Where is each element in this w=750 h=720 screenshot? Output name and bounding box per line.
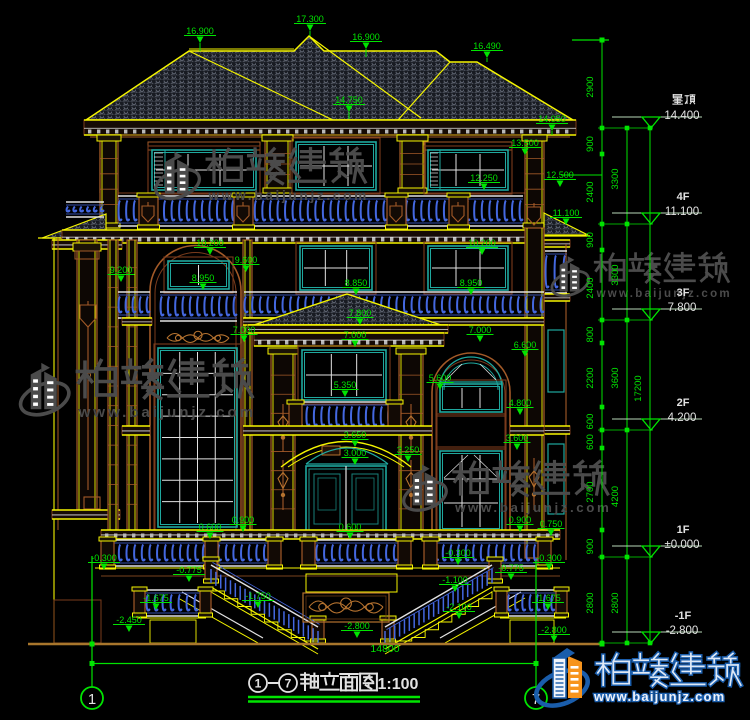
- svg-text:2200: 2200: [585, 367, 596, 388]
- svg-text:-2.100: -2.100: [446, 602, 472, 612]
- svg-text:-0.300: -0.300: [91, 553, 117, 563]
- svg-text:-0.300: -0.300: [445, 548, 471, 558]
- svg-text:2800: 2800: [610, 592, 621, 613]
- svg-text:5.350: 5.350: [334, 380, 357, 390]
- svg-text:0.900: 0.900: [509, 515, 532, 525]
- svg-text:900: 900: [585, 232, 596, 248]
- svg-text:14800: 14800: [370, 643, 399, 655]
- svg-text:600: 600: [585, 414, 596, 430]
- svg-text:12.250: 12.250: [470, 173, 498, 183]
- svg-text:1:100: 1:100: [378, 676, 419, 693]
- svg-text:0.900: 0.900: [232, 515, 255, 525]
- svg-text:3600: 3600: [610, 367, 621, 388]
- svg-text:-0.775: -0.775: [176, 565, 202, 575]
- svg-text:4.200: 4.200: [668, 412, 697, 424]
- svg-text:9.600: 9.600: [235, 255, 258, 265]
- svg-text:8.950: 8.950: [460, 278, 483, 288]
- svg-text:-0.775: -0.775: [498, 563, 524, 573]
- svg-text:3300: 3300: [610, 168, 621, 189]
- svg-text:10.200: 10.200: [468, 238, 496, 248]
- svg-text:5.600: 5.600: [429, 373, 452, 383]
- svg-text:6.600: 6.600: [514, 340, 537, 350]
- svg-text:www.baijunjz.com: www.baijunjz.com: [596, 288, 732, 300]
- svg-text:0.600: 0.600: [199, 522, 222, 532]
- svg-text:0.750: 0.750: [540, 519, 563, 529]
- svg-text:3.650: 3.650: [344, 430, 367, 440]
- svg-text:7.800: 7.800: [668, 302, 697, 314]
- svg-text:7.000: 7.000: [233, 325, 256, 335]
- svg-text:-1F: -1F: [675, 610, 692, 622]
- svg-text:1: 1: [88, 691, 96, 708]
- svg-text:-1.750: -1.750: [245, 591, 271, 601]
- svg-text:www.baijunjz.com: www.baijunjz.com: [593, 689, 725, 704]
- svg-text:800: 800: [585, 327, 596, 343]
- svg-text:-2.800: -2.800: [344, 621, 370, 631]
- svg-text:1: 1: [255, 677, 262, 691]
- svg-text:www.baijunjz.com: www.baijunjz.com: [207, 188, 369, 203]
- svg-text:www.baijunjz.com: www.baijunjz.com: [78, 404, 256, 421]
- svg-text:16.900: 16.900: [352, 32, 380, 42]
- svg-text:14.050: 14.050: [538, 114, 566, 124]
- svg-text:1F: 1F: [677, 524, 690, 536]
- svg-text:7.000: 7.000: [344, 330, 367, 340]
- svg-text:8.850: 8.850: [345, 278, 368, 288]
- svg-text:3F: 3F: [677, 287, 690, 299]
- svg-text:-1.100: -1.100: [442, 575, 468, 585]
- svg-text:3300: 3300: [610, 264, 621, 285]
- svg-text:16.900: 16.900: [186, 26, 214, 36]
- svg-text:4.800: 4.800: [509, 398, 532, 408]
- svg-text:10.200: 10.200: [196, 238, 224, 248]
- svg-text:3.600: 3.600: [506, 433, 529, 443]
- svg-text:-0.300: -0.300: [536, 553, 562, 563]
- svg-text:7: 7: [285, 677, 292, 691]
- svg-text:-1.675: -1.675: [535, 593, 561, 603]
- svg-text:13.500: 13.500: [511, 138, 539, 148]
- svg-text:2800: 2800: [585, 592, 596, 613]
- svg-text:2700: 2700: [585, 481, 596, 502]
- svg-text:-2.450: -2.450: [116, 615, 142, 625]
- svg-text:0.600: 0.600: [339, 522, 362, 532]
- svg-text:900: 900: [585, 539, 596, 555]
- svg-text:4200: 4200: [610, 486, 621, 507]
- svg-text:2400: 2400: [585, 277, 596, 298]
- svg-text:14.400: 14.400: [664, 110, 699, 122]
- svg-text:16.490: 16.490: [473, 41, 501, 51]
- svg-text:600: 600: [585, 434, 596, 450]
- svg-text:-1.675: -1.675: [143, 593, 169, 603]
- svg-text:11.100: 11.100: [665, 206, 699, 218]
- svg-text:3.250: 3.250: [397, 445, 420, 455]
- svg-text:±0.000: ±0.000: [664, 539, 699, 551]
- svg-text:8.950: 8.950: [192, 273, 215, 283]
- svg-text:14.750: 14.750: [335, 95, 363, 105]
- svg-text:3.000: 3.000: [344, 448, 367, 458]
- svg-text:7.800: 7.800: [349, 308, 372, 318]
- svg-text:7.000: 7.000: [469, 325, 492, 335]
- svg-text:-2.800: -2.800: [666, 625, 699, 637]
- svg-text:2F: 2F: [677, 397, 690, 409]
- svg-text:11.100: 11.100: [553, 208, 580, 218]
- svg-text:-2.800: -2.800: [541, 625, 567, 635]
- svg-text:17200: 17200: [633, 375, 644, 401]
- svg-text:17.300: 17.300: [296, 14, 324, 24]
- svg-text:4F: 4F: [677, 191, 690, 203]
- svg-text:2900: 2900: [585, 76, 596, 97]
- svg-text:2400: 2400: [585, 181, 596, 202]
- svg-text:900: 900: [585, 136, 596, 152]
- svg-text:9.200: 9.200: [110, 265, 133, 275]
